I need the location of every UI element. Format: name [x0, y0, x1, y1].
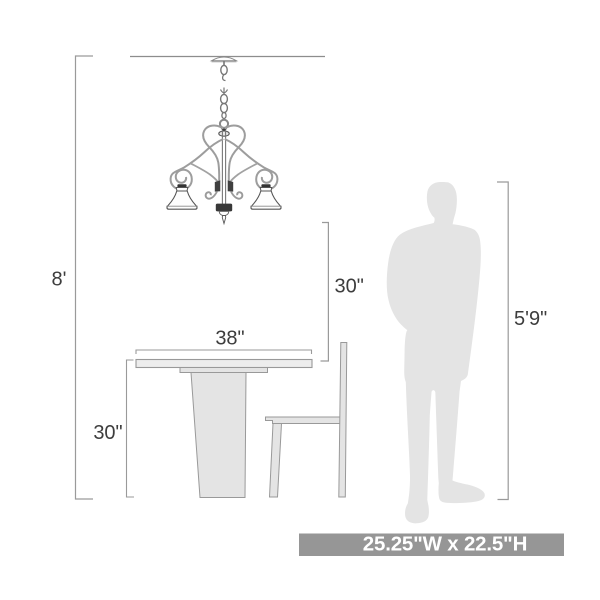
- svg-text:5'9": 5'9": [514, 308, 547, 330]
- svg-text:25.25"W x 22.5"H: 25.25"W x 22.5"H: [363, 533, 527, 556]
- svg-text:8': 8': [52, 269, 67, 291]
- svg-text:30": 30": [93, 422, 122, 444]
- svg-text:30": 30": [335, 276, 364, 298]
- svg-text:38": 38": [215, 328, 244, 350]
